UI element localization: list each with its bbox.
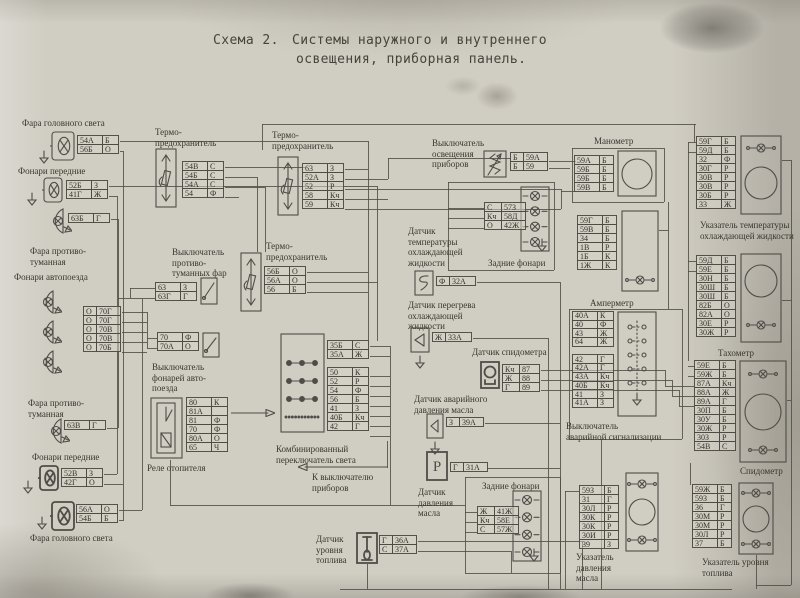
oil-pressure-gauge-pins: 59ЗБ31Г30ЛР30КР30КР30ИР39З xyxy=(579,486,619,549)
coolant-overheat-sensor-pins: Ж33А xyxy=(432,333,472,342)
front-lamps-bottom-label: Фонари передние xyxy=(32,452,99,463)
wire xyxy=(565,491,579,492)
arrow-left-icon xyxy=(298,463,388,471)
coolant-temp-gauge-label: Указатель температуры охлаждающей жидкос… xyxy=(700,220,794,241)
wire xyxy=(465,477,466,573)
fog-switch-pins: 63З63ГГ xyxy=(155,283,197,301)
lamp-rect-icon xyxy=(42,176,64,204)
thermo-fuse-1-label: Термо- предохранитель xyxy=(155,127,216,148)
wire xyxy=(668,202,669,309)
sensor-contact-icon xyxy=(426,413,444,439)
wire xyxy=(345,169,368,170)
wire xyxy=(307,272,368,273)
wire xyxy=(756,585,791,586)
wire xyxy=(370,376,390,377)
wire xyxy=(572,148,573,202)
wire xyxy=(262,124,696,125)
wire xyxy=(370,426,390,427)
wire xyxy=(487,468,560,469)
wire xyxy=(465,532,477,533)
coolant-temp-sensor-label: Датчик температуры охлаждающей жидкости xyxy=(408,226,463,268)
wire xyxy=(122,342,147,343)
fog-lamp-bottom-pins: 63ВГ xyxy=(64,421,106,430)
wire xyxy=(370,356,390,357)
oil-pressure-sensor-label: Датчик давления масла xyxy=(418,487,453,519)
wire xyxy=(368,141,369,341)
wire xyxy=(307,292,368,293)
ammeter-label: Амперметр xyxy=(590,298,634,309)
gauge-icon xyxy=(738,482,774,555)
wire xyxy=(418,551,511,552)
wire xyxy=(548,338,549,589)
wire xyxy=(465,573,560,574)
wire xyxy=(370,436,390,437)
panel-light-switch-pins: Б59АБ59 xyxy=(510,153,548,171)
tachometer-label: Тахометр xyxy=(718,348,754,359)
oil-warning-sensor-label: Датчик аварийного давления масла xyxy=(414,394,487,415)
wire xyxy=(561,189,562,209)
fuel-level-sensor-label: Датчик уровня топлива xyxy=(316,534,347,566)
wire xyxy=(672,396,694,397)
headlamp-bottom-label: Фара головного света xyxy=(30,533,113,544)
wire xyxy=(672,380,673,396)
heater-relay-pins: 80К81А81Ф70Ф80АО65Ч xyxy=(186,398,228,452)
wire xyxy=(665,370,666,386)
front-lamps-top-label: Фонари передние xyxy=(18,166,85,177)
wire xyxy=(682,309,683,439)
hazard-switch-pins: 40АК40Ф43Ж64Ж42Г42АГ43АКч40БКч41З41АЗ xyxy=(572,312,614,408)
gauge-icon xyxy=(625,472,659,552)
wire xyxy=(225,187,265,188)
ground-icon xyxy=(36,516,48,530)
hazard-icon xyxy=(617,311,657,417)
fuse-icon xyxy=(155,148,177,208)
fuse-icon xyxy=(277,156,299,216)
wire xyxy=(569,309,570,439)
combo-light-switch-label: Комбинированный переключатель света xyxy=(276,444,356,465)
manometer-label: Манометр xyxy=(594,136,633,147)
gauge-icon xyxy=(617,150,657,197)
wire xyxy=(122,312,147,313)
wire xyxy=(119,520,123,521)
wire xyxy=(569,309,682,310)
wire xyxy=(147,312,148,348)
wire xyxy=(367,564,368,589)
wire xyxy=(225,177,257,178)
speedometer-pins: 59ЕБ59ЖБ87АКч88АЖ89АГ30ПБ30УБ30ЖР30ЗР54В… xyxy=(694,361,736,451)
sensor-speed-icon xyxy=(480,361,500,389)
wire xyxy=(694,124,695,142)
wire xyxy=(225,197,239,198)
wire xyxy=(465,512,477,513)
speedometer-sensor-pins: Кч87Ж88Г89 xyxy=(502,365,540,392)
wire xyxy=(111,219,118,220)
front-lamps-bottom-pins: 52ВЗ42ГО xyxy=(61,469,103,487)
headlamp-top-label: Фара головного света xyxy=(22,118,105,129)
wire xyxy=(130,288,131,298)
wire xyxy=(572,148,664,149)
wire xyxy=(659,230,668,231)
sensor-temp-icon xyxy=(414,270,434,296)
fuel-level-gauge-label: Указатель уровня топлива xyxy=(702,557,769,578)
wire xyxy=(690,463,691,485)
note-to-switch-label: К выключателю приборов xyxy=(312,472,373,493)
oil-warning-sensor-pins: З39А xyxy=(446,418,484,427)
fuel-level-sensor-pins: Г36АС37А xyxy=(379,536,417,554)
wire xyxy=(448,208,484,209)
wire xyxy=(448,270,554,271)
gauge-icon xyxy=(739,360,787,463)
wire xyxy=(782,160,791,161)
gauge-icon xyxy=(621,210,659,292)
wire xyxy=(418,541,582,542)
wire xyxy=(109,196,117,197)
wire xyxy=(688,142,696,143)
wire xyxy=(560,477,561,573)
fog-lamp-top-label: Фара противо- туманная xyxy=(30,246,86,267)
wire xyxy=(679,390,680,406)
thermo-fuse-2-pins: 63З52АЗ52Р58Кч59Кч xyxy=(302,164,344,209)
wire xyxy=(130,298,155,299)
rear-lamps-top-pins: С57ЗКч58ДО42Ж xyxy=(484,203,526,230)
sensor-contact-icon xyxy=(410,327,430,353)
ground-icon xyxy=(26,192,38,206)
combo-icon xyxy=(280,333,325,433)
fog-lamp-top-pins: 63БГ xyxy=(68,214,110,223)
wire xyxy=(572,202,664,203)
lamp-semi-icon xyxy=(36,348,62,376)
panel-light-switch-label: Выключатель освещения приборов xyxy=(432,138,484,170)
wire xyxy=(345,179,388,180)
ground-icon xyxy=(22,480,34,494)
road-train-lamps-pins: О70ГО70ГО70ВО70ВО70Б xyxy=(83,307,121,352)
gauge-icon xyxy=(740,135,782,215)
ground-icon xyxy=(38,150,50,164)
wire xyxy=(688,152,696,153)
wire xyxy=(465,522,477,523)
fog-switch-label: Выключатель противо- туманных фар xyxy=(172,247,227,279)
fuse-icon xyxy=(240,252,262,312)
wire xyxy=(688,271,696,272)
wire xyxy=(262,124,263,150)
wire xyxy=(485,423,560,424)
wire xyxy=(307,282,377,283)
wire xyxy=(142,299,143,510)
wire xyxy=(122,332,147,333)
wire xyxy=(370,346,390,347)
wire xyxy=(147,338,157,339)
tachometer-pins: 59ДБ59ЕБ30НБ30ШБ30ШБ82БО82АО30ЕР30ЖР xyxy=(696,256,736,337)
svg-text:Р: Р xyxy=(433,459,441,475)
wire xyxy=(122,352,147,353)
schematic-page: Схема 2. Системы наружного и внутреннего… xyxy=(0,0,800,598)
road-train-switch-label: Выключатель фонарей авто- поезда xyxy=(152,362,206,394)
wire xyxy=(122,322,147,323)
oil-pressure-gauge-label: Указатель давления масла xyxy=(576,552,614,584)
headlamp-top-pins: 54АБ56БО xyxy=(77,136,119,154)
wire xyxy=(340,589,732,590)
thermo-fuse-1-pins: 54ВС54БС54АС54Ф xyxy=(182,162,224,198)
manometer-pins: 59АБ59ББ59ББ59ВБ xyxy=(574,156,614,192)
wire xyxy=(565,491,566,589)
wire xyxy=(782,300,791,301)
wire xyxy=(257,177,258,252)
ground-icon xyxy=(414,355,426,369)
wire xyxy=(104,484,123,485)
thermo-fuse-3-label: Термо- предохранитель xyxy=(266,241,327,262)
road-train-switch-pins: 70Ф70АО xyxy=(157,333,199,351)
heater-relay-label: Реле отопителя xyxy=(147,463,206,474)
oil-pressure-sensor-pins: Г31А xyxy=(450,463,488,472)
p-box-icon: Р xyxy=(426,451,448,481)
wire xyxy=(688,261,696,262)
wire xyxy=(370,396,390,397)
fuel-float-icon xyxy=(356,532,378,564)
wiring-diagram: Фара головного света54АБ56БОФонари перед… xyxy=(0,0,800,598)
rheostat-icon xyxy=(483,150,507,178)
wire xyxy=(123,151,124,521)
wire xyxy=(465,477,560,478)
wire xyxy=(473,338,548,339)
hazard-switch-label: Выключатель аварийной сигнализации xyxy=(566,421,661,442)
coolant-temp-gauge-pins: 59ГБ59ДБ32Ф30ГР30ВР30ВР30БР33Ж xyxy=(696,137,736,209)
wire xyxy=(147,348,157,349)
wire xyxy=(688,142,689,361)
wire xyxy=(345,199,388,200)
thermo-fuse-2-label: Термо- предохранитель xyxy=(272,130,333,151)
gauge-icon xyxy=(740,253,782,343)
coolant-temp-sensor-pins: Ф32А xyxy=(436,277,476,286)
ammeter-pins: 59ГБ59ВБ34Б1ВР1БК1ЖК xyxy=(577,216,617,270)
wire xyxy=(477,282,560,283)
wire xyxy=(388,158,389,179)
thermo-fuse-3-pins: 56БО56АО56Б xyxy=(264,267,306,294)
lamp-rect-icon xyxy=(50,500,76,532)
front-lamps-top-pins: 52БЗ41ГЖ xyxy=(66,181,108,199)
wire xyxy=(107,428,118,429)
wire xyxy=(370,416,390,417)
wire xyxy=(104,474,117,475)
switch-icon xyxy=(200,277,218,305)
lamp-semi-icon xyxy=(36,288,62,316)
combo-light-switch-pins: 35БС35АЖ50К52Р54Ф56Б41З40БКч42Г xyxy=(327,341,369,431)
wire xyxy=(787,400,791,401)
switch-icon xyxy=(202,332,220,358)
lamp-rect-icon xyxy=(50,130,76,162)
wire xyxy=(554,182,555,270)
speedometer-label: Спидометр xyxy=(740,466,783,477)
fuel-level-gauge-pins: 59ЖБ59ЗБ36Г30МР30МР30ЛР37Б xyxy=(692,485,732,548)
wire xyxy=(549,168,570,169)
lamp-rect-icon xyxy=(38,464,60,492)
wire xyxy=(370,406,390,407)
headlamp-bottom-pins: 56АО54ББ xyxy=(76,505,118,523)
wire xyxy=(370,386,390,387)
arrow-right-icon xyxy=(231,409,275,417)
wire xyxy=(448,182,554,183)
road-train-lamps-label: Фонари автопоезда xyxy=(14,272,88,283)
speedometer-sensor-label: Датчик спидометра xyxy=(472,347,547,358)
wire xyxy=(118,298,130,299)
wire xyxy=(665,386,694,387)
relay-icon xyxy=(150,397,183,459)
wire xyxy=(390,346,391,505)
wire xyxy=(448,218,484,219)
rear-lamps-bottom-pins: Ж41ЖКч58ЕС57Ж xyxy=(477,507,519,534)
rear-lamps-top-label: Задние фонари xyxy=(488,258,545,269)
lamp-semi-icon xyxy=(36,318,62,346)
wire xyxy=(119,510,142,511)
wire xyxy=(130,288,155,289)
wire xyxy=(664,148,665,202)
